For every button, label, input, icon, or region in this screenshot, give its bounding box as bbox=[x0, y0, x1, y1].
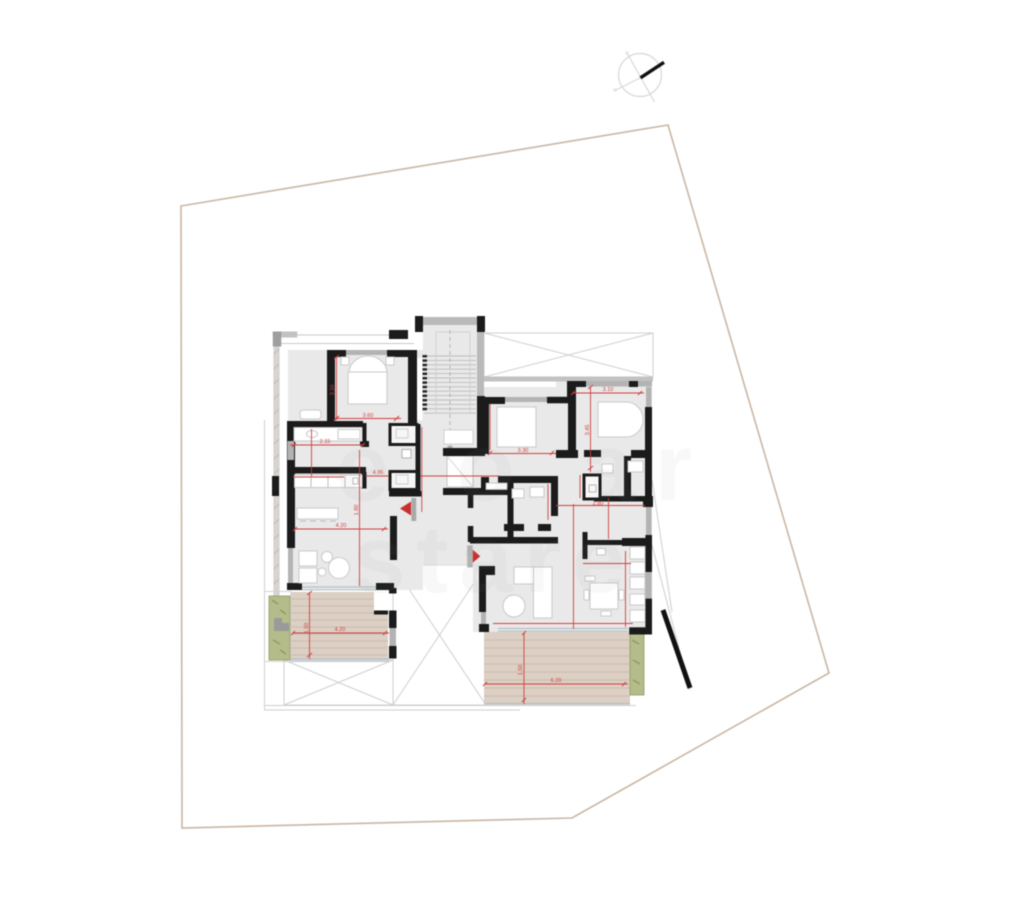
svg-text:4.20: 4.20 bbox=[335, 627, 346, 633]
svg-text:4.20: 4.20 bbox=[336, 523, 347, 529]
svg-text:stare: stare bbox=[352, 506, 637, 613]
svg-text:3.10: 3.10 bbox=[603, 387, 614, 393]
svg-text:1.50: 1.50 bbox=[518, 665, 524, 676]
svg-text:2.15: 2.15 bbox=[320, 439, 331, 445]
svg-text:e o ar: e o ar bbox=[336, 414, 712, 521]
svg-text:1.50: 1.50 bbox=[304, 623, 310, 634]
svg-text:6.20: 6.20 bbox=[551, 678, 562, 684]
svg-text:3.10: 3.10 bbox=[330, 385, 336, 396]
